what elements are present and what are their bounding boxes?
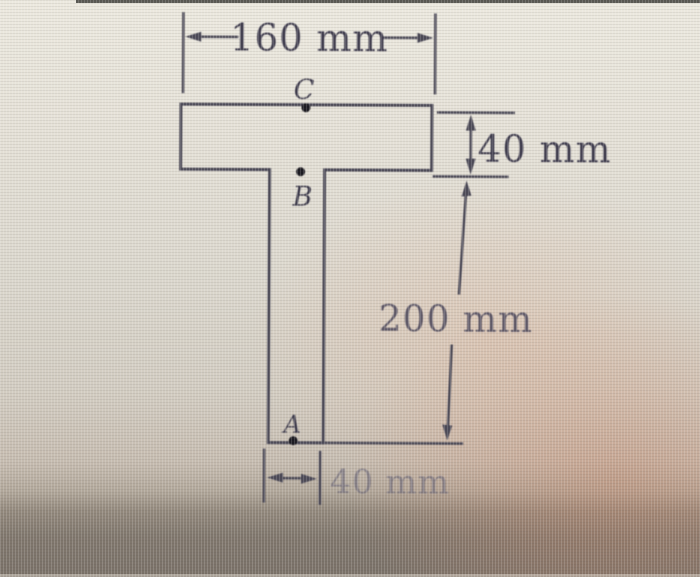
dimension-web-height: 200 mm: [269, 180, 534, 444]
flange-thickness-value: 40 mm: [478, 128, 612, 172]
arrow-right-icon: [301, 474, 317, 484]
arrow-shaft-lower: [448, 345, 452, 431]
arrow-down-icon: [466, 159, 476, 175]
t-section-shape: [179, 104, 432, 443]
arrow-up-icon: [466, 115, 476, 131]
point-b-dot: [296, 167, 305, 176]
t-section-figure: 160 mm 40 mm 200 mm 40 mm: [0, 0, 700, 577]
point-a-dot: [289, 436, 298, 445]
point-c-label: C: [294, 75, 315, 106]
base-extension-line: [269, 443, 463, 444]
arrow-shaft-upper: [459, 193, 466, 295]
photographed-screen-background: 160 mm 40 mm 200 mm 40 mm: [0, 0, 700, 577]
dimension-web-width: 40 mm: [264, 449, 450, 506]
dimension-flange-thickness: 40 mm: [433, 112, 612, 177]
point-b: B: [291, 167, 312, 213]
point-c-dot: [301, 103, 310, 112]
arrow-down-icon: [442, 424, 452, 440]
arrow-left-icon: [267, 473, 283, 483]
arrow-right-icon: [417, 33, 433, 43]
arrow-left-icon: [185, 32, 201, 42]
flange-width-value: 160 mm: [230, 16, 389, 60]
point-a: A: [282, 411, 302, 446]
point-c: C: [294, 75, 315, 113]
point-a-label: A: [282, 411, 301, 439]
web-height-value: 200 mm: [379, 299, 534, 341]
point-b-label: B: [291, 182, 312, 213]
web-width-value: 40 mm: [330, 462, 450, 502]
